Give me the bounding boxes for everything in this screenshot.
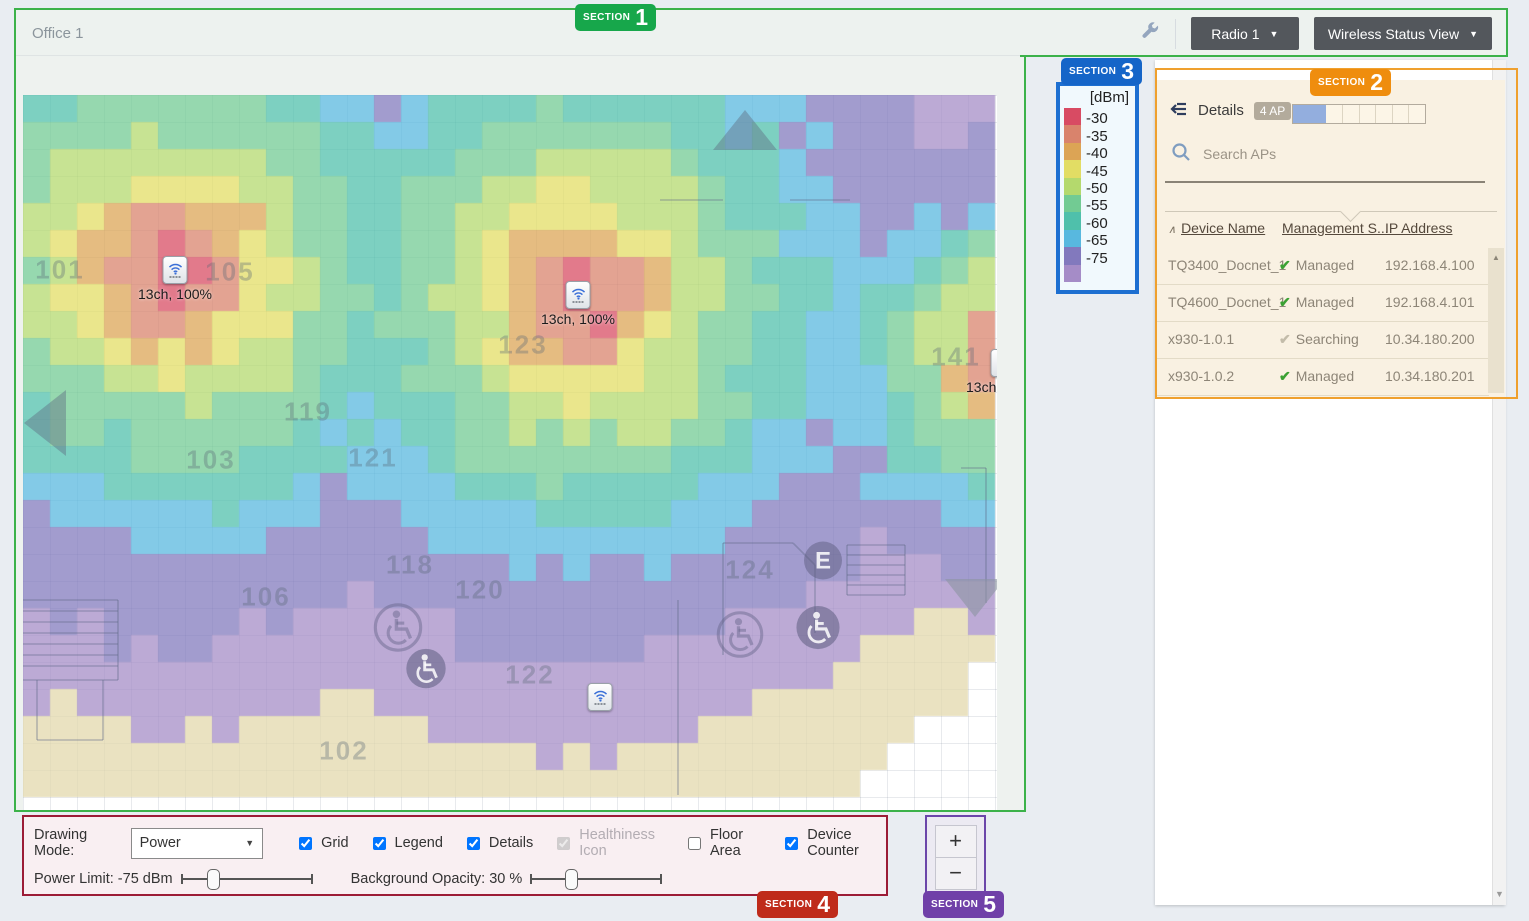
collapse-notch[interactable] bbox=[1340, 201, 1361, 222]
ip-address-cell: 10.34.180.201 bbox=[1385, 368, 1475, 384]
legend-label: -75 bbox=[1086, 252, 1108, 265]
legend-label: -65 bbox=[1086, 234, 1108, 247]
room-number-label: 121 bbox=[348, 443, 397, 474]
section5-badge: SECTION5 bbox=[923, 891, 1004, 918]
checkbox-input[interactable] bbox=[785, 837, 798, 850]
checkbox-label: Legend bbox=[395, 835, 443, 851]
legend-rows: -30-35-40-45-50-55-60-65-75 bbox=[1064, 108, 1131, 282]
legend-swatch bbox=[1064, 247, 1081, 264]
slider-track bbox=[530, 878, 662, 880]
management-status-cell: ✔Managed bbox=[1279, 257, 1354, 274]
column-ip-address[interactable]: IP Address bbox=[1385, 220, 1452, 236]
search-icon bbox=[1171, 142, 1191, 165]
legend-label: -60 bbox=[1086, 217, 1108, 230]
capacity-segment bbox=[1310, 105, 1327, 123]
slider-end-tick bbox=[311, 874, 313, 884]
legend-swatch bbox=[1064, 125, 1081, 142]
slider-group: Background Opacity: 30 % bbox=[351, 869, 663, 889]
legend-entry: -45 bbox=[1064, 160, 1131, 177]
ip-address-cell: 10.34.180.200 bbox=[1385, 331, 1475, 347]
checkbox-legend[interactable]: Legend bbox=[369, 834, 443, 853]
ap-table-header: ∧Device Name Management S... IP Address bbox=[1157, 220, 1489, 246]
column-device-name[interactable]: ∧Device Name bbox=[1168, 220, 1265, 236]
legend-swatch bbox=[1064, 143, 1081, 160]
ap-table-row[interactable]: TQ3400_Docnet_1✔Managed192.168.4.100 bbox=[1157, 248, 1489, 285]
legend-label: -55 bbox=[1086, 199, 1108, 212]
section3-badge: SECTION3 bbox=[1061, 58, 1142, 85]
room-number-label: 102 bbox=[319, 736, 368, 767]
scroll-up-icon[interactable]: ▲ bbox=[1492, 253, 1500, 262]
wrench-icon[interactable] bbox=[1138, 20, 1160, 47]
slider-end-tick bbox=[530, 874, 532, 884]
room-number-label: 101 bbox=[35, 255, 84, 286]
controls-row-2: Power Limit: -75 dBmBackground Opacity: … bbox=[34, 869, 662, 889]
scroll-down-icon[interactable]: ▼ bbox=[1495, 889, 1504, 899]
room-number-label: 105 bbox=[205, 257, 254, 288]
legend-swatch bbox=[1064, 108, 1081, 125]
check-icon: ✔ bbox=[1279, 368, 1291, 384]
heatmap-canvas bbox=[23, 95, 997, 810]
legend-entry bbox=[1064, 265, 1131, 282]
checkbox-device-counter[interactable]: Device Counter bbox=[781, 827, 886, 859]
slider[interactable] bbox=[530, 869, 662, 889]
legend-label: -40 bbox=[1086, 147, 1108, 160]
legend-entry: -30 bbox=[1064, 108, 1131, 125]
capacity-segment bbox=[1376, 105, 1393, 123]
legend-title: [dBm] bbox=[1064, 89, 1129, 106]
legend-label: -50 bbox=[1086, 182, 1108, 195]
ap-table-row[interactable]: x930-1.0.2✔Managed10.34.180.201 bbox=[1157, 359, 1489, 396]
status-text: Managed bbox=[1296, 257, 1354, 273]
access-point-icon[interactable] bbox=[163, 256, 188, 284]
legend-entry: -50 bbox=[1064, 178, 1131, 195]
room-number-label: 122 bbox=[505, 660, 554, 691]
search-aps-field[interactable]: Search APs bbox=[1171, 142, 1276, 165]
chevron-down-icon: ▼ bbox=[245, 838, 254, 848]
management-status-cell: ✔Searching bbox=[1279, 331, 1359, 348]
search-placeholder: Search APs bbox=[1203, 146, 1276, 162]
checkbox-label: Floor Area bbox=[710, 827, 761, 859]
checkbox-input[interactable] bbox=[467, 837, 480, 850]
room-number-label: 141 bbox=[931, 342, 980, 373]
check-gray-icon: ✔ bbox=[1279, 331, 1291, 347]
device-name-cell: x930-1.0.1 bbox=[1168, 331, 1234, 347]
divider bbox=[16, 55, 1020, 56]
access-point-icon[interactable] bbox=[991, 349, 998, 377]
slider-label: Power Limit: -75 dBm bbox=[34, 871, 173, 887]
details-title: Details bbox=[1198, 102, 1244, 119]
drawing-mode-label: Drawing Mode: bbox=[34, 827, 123, 859]
divider bbox=[1175, 19, 1176, 49]
room-number-label: 119 bbox=[284, 397, 332, 428]
dbm-legend: [dBm] -30-35-40-45-50-55-60-65-75 bbox=[1058, 84, 1137, 292]
legend-entry: -40 bbox=[1064, 143, 1131, 160]
access-point-icon[interactable] bbox=[566, 281, 591, 309]
checkbox-floor-area[interactable]: Floor Area bbox=[684, 827, 761, 859]
controls-row-1: Drawing Mode: Power ▼ GridLegendDetailsH… bbox=[34, 827, 886, 859]
ip-address-cell: 192.168.4.100 bbox=[1385, 257, 1475, 273]
check-icon: ✔ bbox=[1279, 257, 1291, 273]
slider-group: Power Limit: -75 dBm bbox=[34, 869, 313, 889]
capacity-segment bbox=[1293, 105, 1310, 123]
checkbox-input bbox=[557, 837, 570, 850]
legend-label: -45 bbox=[1086, 165, 1108, 178]
checkbox-input[interactable] bbox=[373, 837, 386, 850]
sort-asc-icon: ∧ bbox=[1168, 223, 1176, 236]
checkbox-input[interactable] bbox=[299, 837, 312, 850]
legend-swatch bbox=[1064, 160, 1081, 177]
floor-map[interactable]: 101105123119103121141118120106124122102E… bbox=[23, 95, 997, 810]
status-text: Searching bbox=[1296, 331, 1359, 347]
section4-badge: SECTION4 bbox=[757, 891, 838, 918]
slider-thumb[interactable] bbox=[565, 869, 578, 890]
device-name-cell: TQ4600_Docnet_1 bbox=[1168, 294, 1286, 310]
zoom-out-button[interactable]: − bbox=[935, 857, 977, 890]
checkbox-label: Device Counter bbox=[807, 827, 886, 859]
divider bbox=[1165, 181, 1485, 183]
radio-dropdown[interactable]: Radio 1 ▼ bbox=[1191, 17, 1299, 50]
legend-swatch bbox=[1064, 265, 1081, 282]
legend-entry: -75 bbox=[1064, 247, 1131, 264]
display-checkboxes: GridLegendDetailsHealthiness IconFloor A… bbox=[295, 827, 886, 859]
checkbox-input[interactable] bbox=[688, 837, 701, 850]
checkbox-label: Details bbox=[489, 835, 533, 851]
legend-swatch bbox=[1064, 212, 1081, 229]
room-number-label: 123 bbox=[498, 330, 547, 361]
legend-swatch bbox=[1064, 195, 1081, 212]
drawing-controls-panel: Drawing Mode: Power ▼ GridLegendDetailsH… bbox=[22, 815, 888, 896]
legend-entry: -35 bbox=[1064, 125, 1131, 142]
divider bbox=[1165, 211, 1497, 212]
checkbox-grid[interactable]: Grid bbox=[295, 834, 348, 853]
chevron-down-icon: ▼ bbox=[1270, 29, 1279, 39]
ap-details-card: Details 4 AP Search APs ∧Device Name Man… bbox=[1157, 80, 1505, 398]
card-header: Details 4 AP bbox=[1169, 100, 1291, 121]
ap-count-badge: 4 AP bbox=[1254, 102, 1291, 120]
page-title: Office 1 bbox=[32, 25, 83, 42]
capacity-segment bbox=[1360, 105, 1377, 123]
management-status-cell: ✔Managed bbox=[1279, 294, 1354, 311]
access-point-label: 13ch, 100% bbox=[138, 286, 212, 302]
ap-table-row[interactable]: x930-1.0.1✔Searching10.34.180.200 bbox=[1157, 322, 1489, 359]
legend-label: -30 bbox=[1086, 112, 1108, 125]
legend-entry: -55 bbox=[1064, 195, 1131, 212]
legend-entry: -65 bbox=[1064, 230, 1131, 247]
legend-label: -35 bbox=[1086, 130, 1108, 143]
device-name-cell: TQ3400_Docnet_1 bbox=[1168, 257, 1286, 273]
capacity-bar bbox=[1292, 104, 1426, 124]
top-bar-actions: Radio 1 ▼ Wireless Status View ▼ bbox=[1138, 17, 1492, 50]
checkbox-label: Grid bbox=[321, 835, 348, 851]
ip-address-cell: 192.168.4.101 bbox=[1385, 294, 1475, 310]
drawing-mode-select[interactable]: Power ▼ bbox=[131, 828, 264, 859]
checkbox-label: Healthiness Icon bbox=[579, 827, 664, 859]
slider-end-tick bbox=[181, 874, 183, 884]
status-text: Managed bbox=[1296, 368, 1354, 384]
room-number-label: 120 bbox=[455, 575, 504, 606]
ap-table-row[interactable]: TQ4600_Docnet_1✔Managed192.168.4.101 bbox=[1157, 285, 1489, 322]
legend-swatch bbox=[1064, 178, 1081, 195]
access-point-label: 13ch, 100% bbox=[966, 379, 997, 395]
column-management-status[interactable]: Management S... bbox=[1282, 220, 1389, 236]
checkbox-details[interactable]: Details bbox=[463, 834, 533, 853]
capacity-segment bbox=[1409, 105, 1425, 123]
slider-thumb[interactable] bbox=[207, 869, 220, 890]
collapse-details-icon[interactable] bbox=[1169, 100, 1188, 121]
check-icon: ✔ bbox=[1279, 294, 1291, 310]
map-zoom-controls: + − bbox=[925, 815, 986, 899]
room-number-label: 103 bbox=[186, 445, 235, 476]
ap-table-rows: TQ3400_Docnet_1✔Managed192.168.4.100TQ46… bbox=[1157, 248, 1489, 396]
table-scrollbar[interactable]: ▲ bbox=[1488, 248, 1504, 393]
slider-label: Background Opacity: 30 % bbox=[351, 871, 523, 887]
section2-badge: SECTION2 bbox=[1310, 69, 1391, 96]
room-number-label: 124 bbox=[725, 555, 774, 586]
legend-entry: -60 bbox=[1064, 212, 1131, 229]
top-bar: Office 1 Radio 1 ▼ Wireless Status View … bbox=[14, 8, 1508, 57]
slider[interactable] bbox=[181, 869, 313, 889]
capacity-segment bbox=[1326, 105, 1343, 123]
room-number-label: 118 bbox=[386, 550, 434, 581]
capacity-segment bbox=[1393, 105, 1410, 123]
section1-badge: SECTION1 bbox=[575, 4, 656, 31]
view-dropdown[interactable]: Wireless Status View ▼ bbox=[1314, 17, 1492, 50]
room-number-label: 106 bbox=[241, 582, 290, 613]
status-text: Managed bbox=[1296, 294, 1354, 310]
legend-swatch bbox=[1064, 230, 1081, 247]
capacity-segment bbox=[1343, 105, 1360, 123]
chevron-down-icon: ▼ bbox=[1469, 29, 1478, 39]
checkbox-healthiness-icon: Healthiness Icon bbox=[553, 827, 664, 859]
slider-end-tick bbox=[660, 874, 662, 884]
zoom-in-button[interactable]: + bbox=[935, 825, 977, 857]
management-status-cell: ✔Managed bbox=[1279, 368, 1354, 385]
device-name-cell: x930-1.0.2 bbox=[1168, 368, 1234, 384]
slider-track bbox=[181, 878, 313, 880]
section1-border-segment bbox=[1020, 55, 1508, 57]
access-point-icon[interactable] bbox=[588, 683, 613, 711]
access-point-label: 13ch, 100% bbox=[541, 311, 615, 327]
